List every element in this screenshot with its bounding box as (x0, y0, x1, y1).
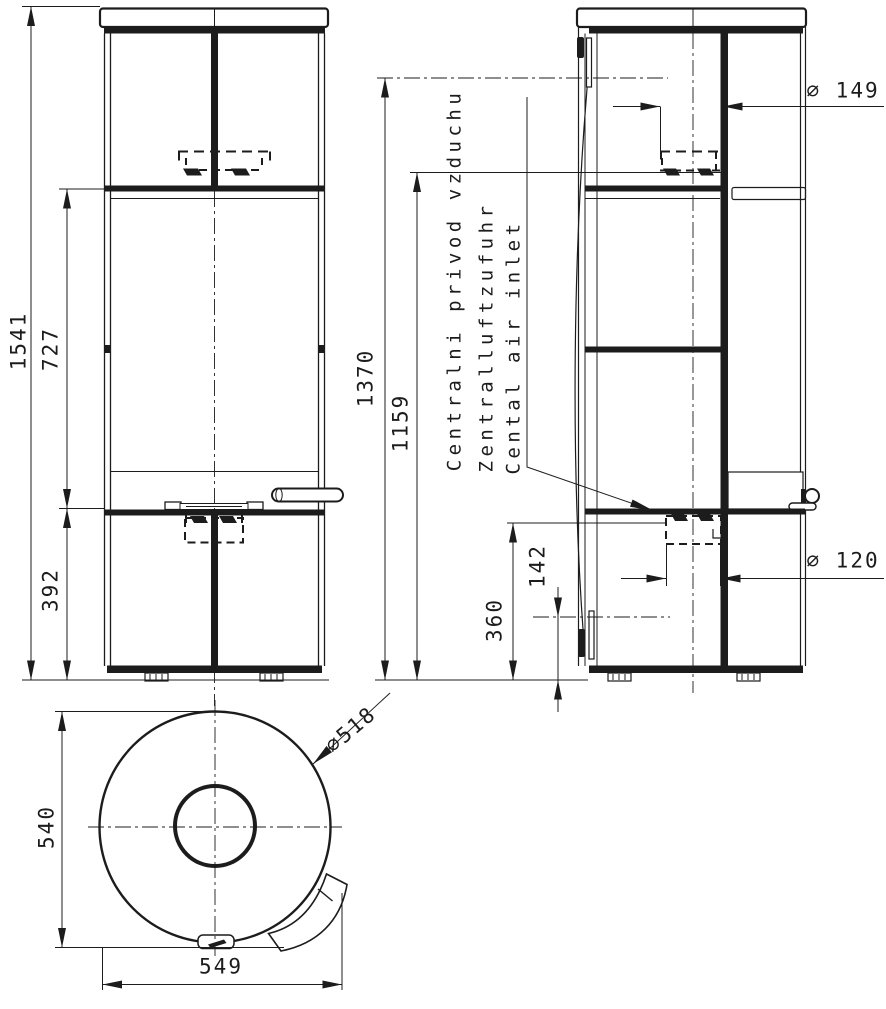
air-inlet-leader-line (527, 97, 654, 511)
dim-collar-height-label: 1159 (391, 394, 412, 453)
dim-depth-label: 540 (37, 805, 58, 849)
air-inlet-note-de: Zentralluftzufuhr (478, 202, 497, 473)
dim-inlet-top-label: 360 (485, 598, 506, 642)
side-air-collar-hidden (666, 514, 721, 544)
dim-lower-height-label: 392 (41, 568, 62, 612)
dim-overall-height-label: 1541 (9, 312, 30, 371)
dim-inlet-axis-label: 142 (528, 544, 549, 588)
air-inlet-note-en: Cental air inlet (505, 219, 524, 474)
dim-flue-diameter-label: ⌀ 149 (806, 81, 879, 102)
dim-inlet-diameter-label: ⌀ 120 (806, 551, 879, 572)
dim-upper-height-label: 727 (41, 327, 62, 371)
side-feet (608, 673, 760, 681)
side-flue-collar-hidden (660, 152, 723, 176)
top-view-linework (100, 712, 348, 952)
front-view-linework (100, 9, 343, 682)
flue-ring-circle (175, 786, 255, 866)
dim-outlet-axis-label: 1370 (356, 349, 377, 408)
dim-width-label: 549 (199, 957, 243, 978)
drawing-sheet: 1541 727 392 1370 1159 ⌀ 149 ⌀ 120 360 1… (0, 0, 886, 1009)
side-view-linework (575, 9, 819, 682)
front-flue-collar-hidden (178, 152, 271, 176)
air-inlet-note-cs: Centralni privod vzduchu (446, 89, 465, 472)
side-top-cap (577, 9, 806, 28)
handle-end (805, 489, 819, 503)
